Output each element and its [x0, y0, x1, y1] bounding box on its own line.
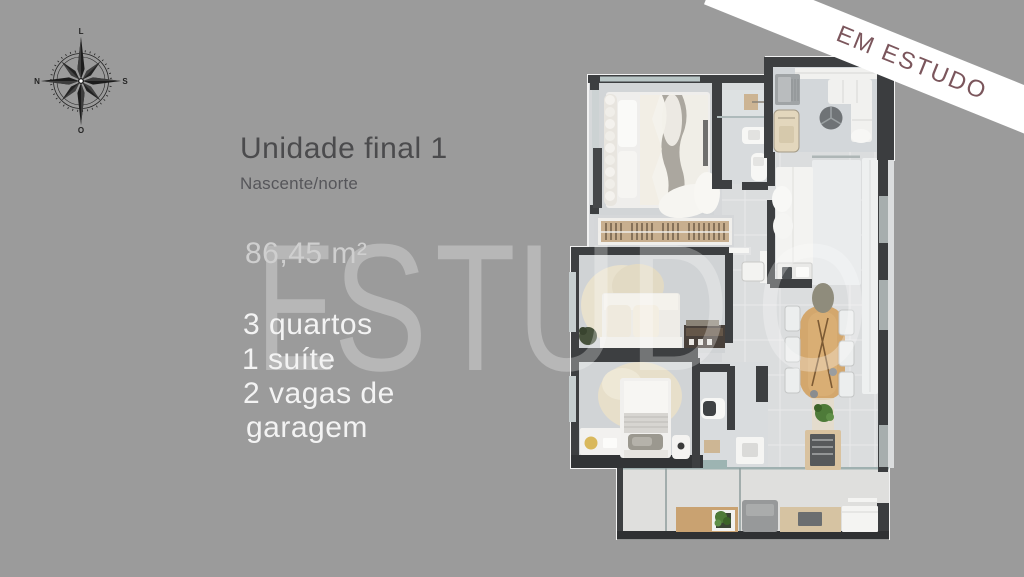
svg-text:3 quartos: 3 quartos [243, 308, 373, 341]
svg-text:Unidade final 1: Unidade final 1 [240, 132, 448, 165]
svg-text:garagem: garagem [246, 411, 368, 444]
svg-text:O: O [78, 126, 84, 135]
svg-text:T: T [435, 207, 516, 409]
svg-text:S: S [122, 77, 128, 86]
svg-text:86,45 m²: 86,45 m² [245, 237, 367, 270]
svg-text:L: L [79, 27, 84, 36]
svg-text:U: U [517, 207, 619, 409]
svg-text:O: O [756, 207, 869, 409]
svg-text:Nascente/norte: Nascente/norte [240, 174, 358, 193]
svg-text:1 suíte: 1 suíte [242, 343, 336, 376]
svg-text:D: D [628, 207, 729, 409]
svg-text:N: N [34, 77, 40, 86]
svg-text:2 vagas de: 2 vagas de [243, 377, 395, 410]
